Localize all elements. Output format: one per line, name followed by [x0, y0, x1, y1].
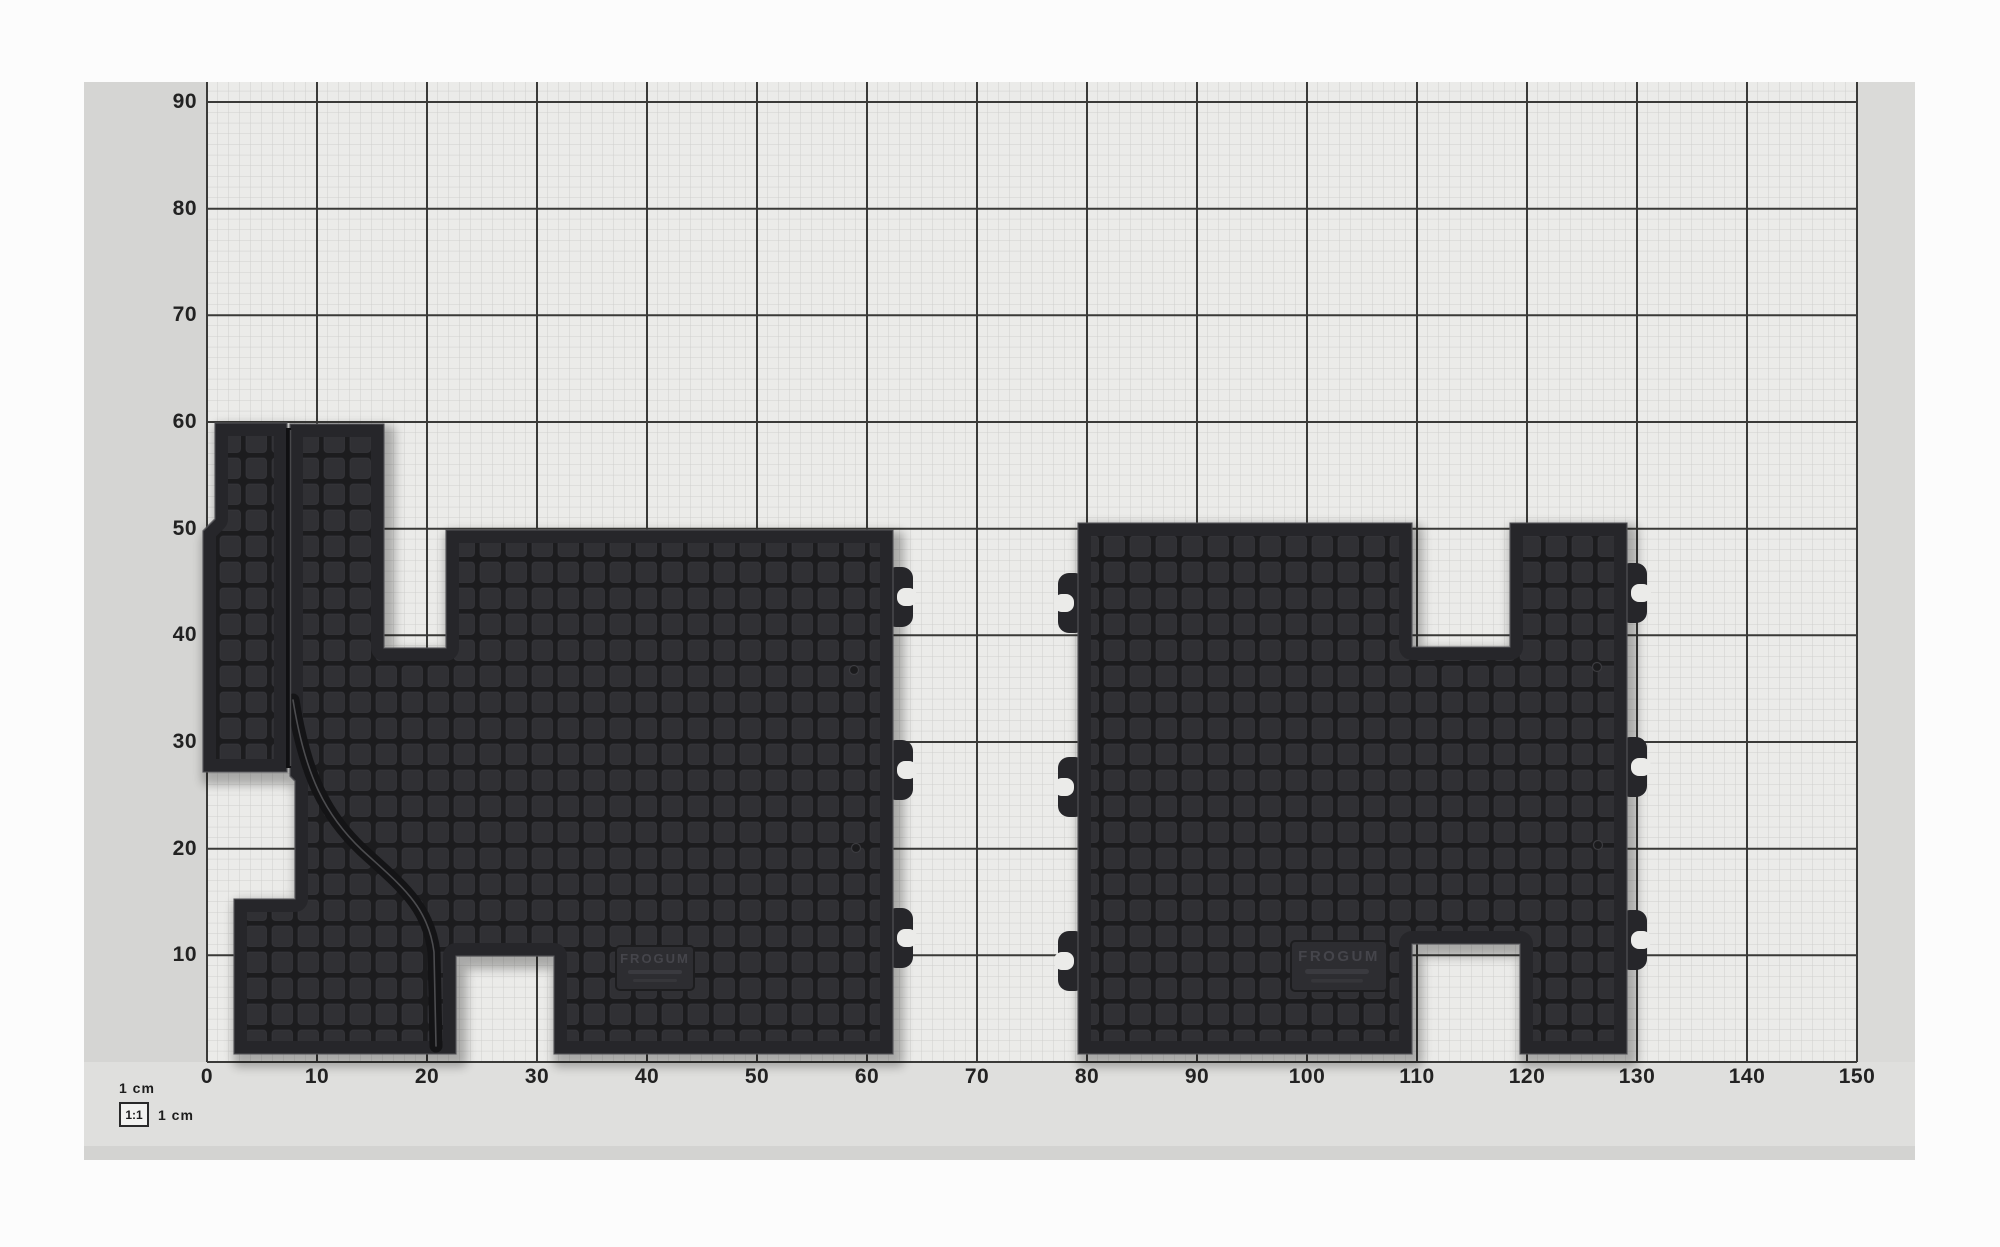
- x-axis-tick-label: 40: [635, 1066, 659, 1088]
- y-axis-tick-label: 90: [173, 91, 197, 113]
- measurement-photo-page: FROGUM: [0, 0, 2000, 1247]
- y-axis-tick-label: 70: [173, 304, 197, 326]
- logo-text: FROGUM: [620, 951, 690, 966]
- scale-legend: 1 cm 1:1 1 cm: [119, 1080, 194, 1127]
- mat-piece-narrow-left: [203, 423, 287, 772]
- x-axis-tick-label: 50: [745, 1066, 769, 1088]
- y-axis-tick-label: 50: [173, 518, 197, 540]
- y-axis-tick-label: 20: [173, 838, 197, 860]
- x-axis-tick-label: 90: [1185, 1066, 1209, 1088]
- x-axis-tick-label: 20: [415, 1066, 439, 1088]
- scale-label-side: 1 cm: [158, 1107, 194, 1123]
- photo-right-margin: [1857, 82, 1915, 1062]
- fixation-nub: [1593, 663, 1602, 672]
- x-axis-tick-label: 120: [1509, 1066, 1546, 1088]
- x-axis-tick-label: 150: [1839, 1066, 1876, 1088]
- piece-junction-seam: [289, 428, 291, 768]
- logo-code-line: [1305, 969, 1369, 974]
- frogum-logo-left: FROGUM: [616, 946, 694, 990]
- fixation-nub: [852, 844, 861, 853]
- y-axis-tick-label: 10: [173, 944, 197, 966]
- scale-ratio-box: 1:1: [119, 1102, 149, 1127]
- x-axis-tick-label: 130: [1619, 1066, 1656, 1088]
- logo-text: FROGUM: [1298, 948, 1380, 965]
- scale-label-top: 1 cm: [119, 1080, 194, 1096]
- y-axis-tick-label: 60: [173, 411, 197, 433]
- photo-left-margin: [84, 82, 207, 1062]
- photo-graphic: FROGUM: [0, 0, 2000, 1247]
- frogum-logo-right: FROGUM: [1291, 941, 1387, 991]
- photo-bottom-edge: [84, 1146, 1915, 1160]
- x-axis-tick-label: 70: [965, 1066, 989, 1088]
- x-axis-tick-label: 140: [1729, 1066, 1766, 1088]
- y-axis-tick-label: 80: [173, 198, 197, 220]
- x-axis-tick-label: 10: [305, 1066, 329, 1088]
- scale-ratio-label: 1:1: [125, 1108, 142, 1122]
- x-axis-tick-label: 100: [1289, 1066, 1326, 1088]
- x-axis-tick-label: 80: [1075, 1066, 1099, 1088]
- fixation-nub: [850, 666, 859, 675]
- logo-code-line: [628, 970, 682, 974]
- fixation-nub: [1594, 841, 1603, 850]
- logo-code-line: [1311, 979, 1363, 983]
- x-axis-tick-label: 0: [201, 1066, 213, 1088]
- x-axis-tick-label: 30: [525, 1066, 549, 1088]
- logo-code-line: [633, 979, 677, 982]
- x-axis-tick-label: 110: [1399, 1066, 1434, 1088]
- x-axis-tick-label: 60: [855, 1066, 879, 1088]
- y-axis-tick-label: 30: [173, 731, 197, 753]
- y-axis-tick-label: 40: [173, 624, 197, 646]
- mat-piece-right: FROGUM: [1054, 523, 1651, 1054]
